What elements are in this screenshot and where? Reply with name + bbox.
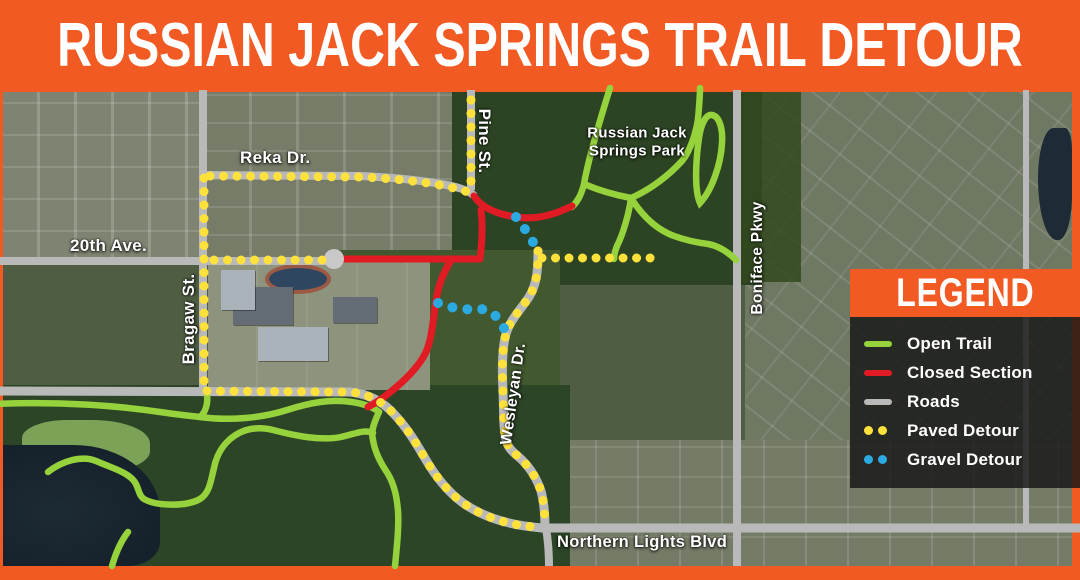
terrain-forest-east <box>737 92 801 282</box>
lake-east <box>1038 128 1072 240</box>
street-label-20th-ave: 20th Ave. <box>70 236 147 256</box>
legend-item-paved-detour: Paved Detour <box>864 416 1080 445</box>
park-label-line1: Russian Jack <box>587 124 687 142</box>
closed-section-swatch <box>864 370 894 376</box>
legend-item-gravel-detour: Gravel Detour <box>864 445 1080 474</box>
legend-item-open-trail: Open Trail <box>864 329 1080 358</box>
street-label-boniface-pkwy: Boniface Pkwy <box>749 201 767 314</box>
title-banner: RUSSIAN JACK SPRINGS TRAIL DETOUR <box>0 0 1080 92</box>
open-trail-swatch <box>864 341 894 347</box>
legend-item-roads: Roads <box>864 387 1080 416</box>
legend-title: LEGEND <box>896 273 1034 313</box>
place-label-russian-jack-springs-park: Russian Jack Springs Park <box>587 124 687 159</box>
legend-body: Open Trail Closed Section Roads Paved De… <box>850 317 1080 488</box>
building <box>221 270 255 310</box>
legend-item-label: Gravel Detour <box>907 450 1022 470</box>
building <box>333 297 377 323</box>
street-label-reka-dr: Reka Dr. <box>240 148 310 168</box>
legend-header: LEGEND <box>850 269 1080 317</box>
street-label-bragaw-st: Bragaw St. <box>179 274 199 365</box>
paved-detour-swatch <box>864 426 894 435</box>
legend-item-label: Roads <box>907 392 960 412</box>
street-label-pine-st: Pine St. <box>474 109 494 174</box>
building <box>258 327 328 361</box>
legend-item-closed-section: Closed Section <box>864 358 1080 387</box>
legend-item-label: Open Trail <box>907 334 992 354</box>
terrain-urban-north <box>205 92 472 262</box>
roads-swatch <box>864 399 894 405</box>
street-label-northern-lights-blvd: Northern Lights Blvd <box>557 533 727 552</box>
gravel-detour-swatch <box>864 455 894 464</box>
legend-item-label: Paved Detour <box>907 421 1019 441</box>
legend: LEGEND Open Trail Closed Section Roads P… <box>850 269 1080 488</box>
legend-item-label: Closed Section <box>907 363 1033 383</box>
page-title: RUSSIAN JACK SPRINGS TRAIL DETOUR <box>57 15 1023 77</box>
park-label-line2: Springs Park <box>587 142 687 160</box>
trail-detour-map-poster: RUSSIAN JACK SPRINGS TRAIL DETOUR <box>0 0 1080 580</box>
